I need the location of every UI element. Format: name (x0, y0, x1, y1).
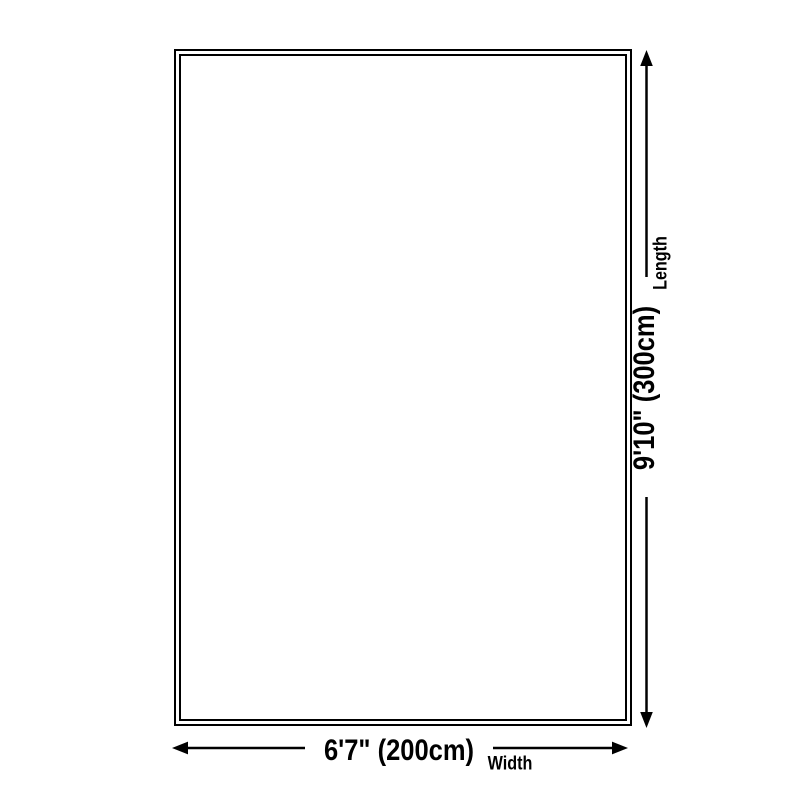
width-dimension-value: 6'7" (200cm) (324, 736, 474, 766)
length-arrow-down-icon (640, 712, 653, 728)
length-dimension-value: 9'10" (300cm) (630, 306, 660, 470)
rug-inner-border (179, 54, 627, 721)
width-arrow-right-icon (612, 742, 628, 755)
width-dimension-label: Width (488, 755, 533, 774)
length-arrow-up-icon (640, 50, 653, 66)
rug-size-diagram: Length 9'10" (300cm) 6'7" (200cm) Width (0, 0, 800, 800)
length-dimension-label: Length (652, 236, 671, 290)
width-arrow-left-icon (172, 742, 188, 755)
rug-outline (174, 49, 632, 726)
